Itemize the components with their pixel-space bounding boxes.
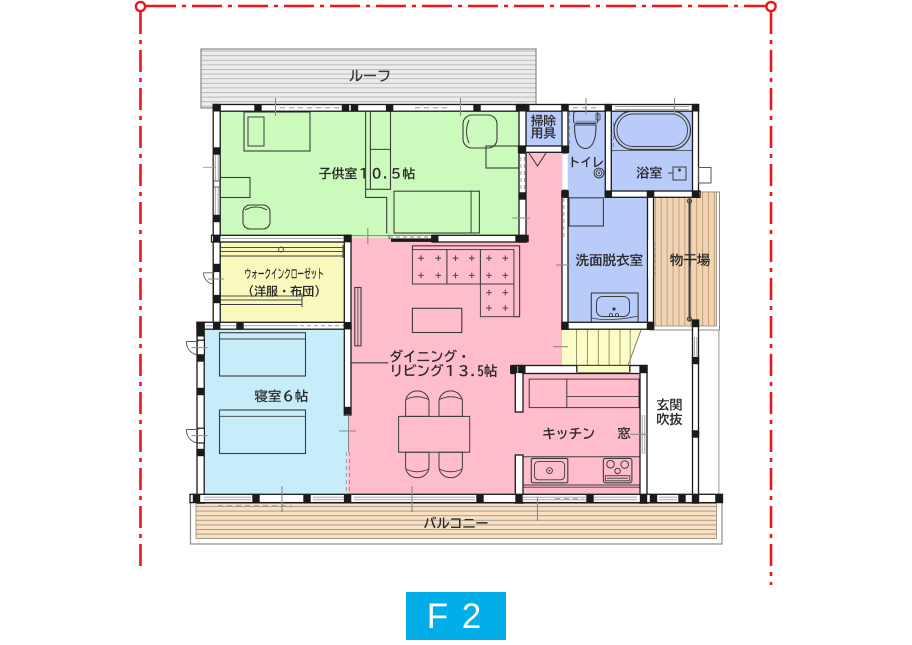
svg-text:F 2: F 2 bbox=[427, 597, 484, 636]
